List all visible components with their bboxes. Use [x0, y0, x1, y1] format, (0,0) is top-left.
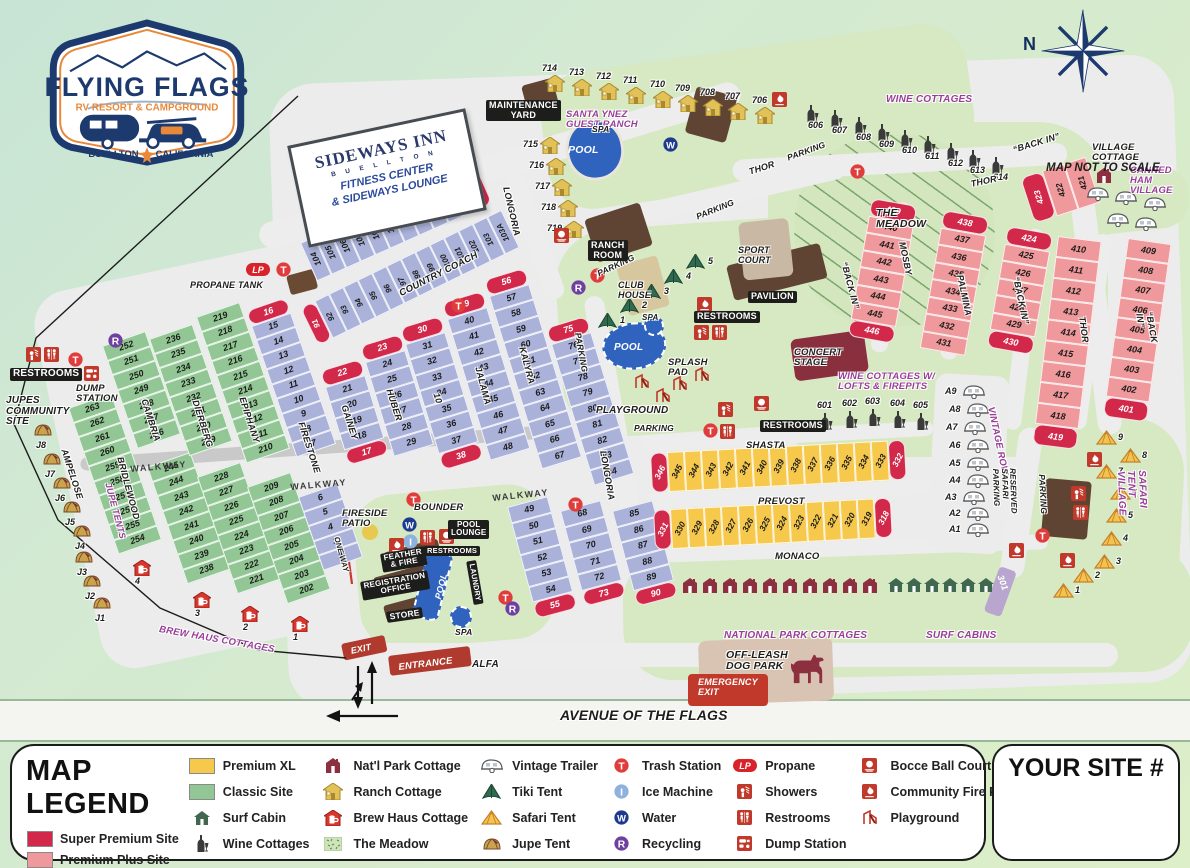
legend-entry-surf-cabin: Surf Cabin: [189, 807, 310, 828]
site-number: 226: [223, 499, 240, 512]
bocce-icon: [754, 396, 769, 411]
legend-entry-dump-station: Dump Station: [731, 833, 846, 854]
site-number: 321: [825, 512, 839, 529]
icon-number: 2: [243, 623, 248, 632]
site-number: 410: [1071, 244, 1087, 255]
site-number: 318: [876, 510, 890, 527]
icon-number: 608: [856, 133, 871, 142]
dump-icon: [84, 366, 99, 381]
icon-number: 610: [902, 146, 917, 155]
shower-icon: [694, 325, 709, 340]
site-number: 249: [133, 383, 150, 396]
wine-icon-603: 603: [868, 408, 881, 427]
legend-entry-label: Brew Haus Cottage: [354, 811, 469, 825]
logo-title-svg: FLYING FLAGS: [45, 72, 250, 102]
site-number: 425: [1018, 250, 1034, 261]
site-number: 73: [598, 588, 610, 599]
ranch-icon: [552, 183, 572, 200]
site-number: 250: [128, 368, 145, 381]
svg-text:W: W: [617, 813, 626, 823]
label-prevost: PREVOST: [758, 497, 805, 507]
icon-number: 717: [535, 182, 550, 191]
r-icon: R: [108, 333, 123, 348]
site-number: 29: [405, 437, 417, 449]
site-number: 56: [500, 276, 512, 288]
site-number: 50: [528, 520, 540, 531]
icon-number: 613: [970, 166, 985, 175]
legend-entry-bocce-ball-court: Bocce Ball Court: [856, 755, 1005, 776]
legend-entry-ranch-cottage: Ranch Cottage: [320, 781, 469, 802]
legend-entry-tiki-tent: Tiki Tent: [478, 781, 598, 802]
site-number: 235: [170, 347, 187, 360]
site-number: 54: [545, 584, 557, 595]
label-concert-stage: CONCERT STAGE: [794, 348, 842, 368]
site-number: 407: [1135, 285, 1151, 296]
site-number: 431: [936, 338, 952, 349]
icon-number: A3: [945, 493, 957, 502]
legend-entry-label: Wine Cottages: [223, 837, 310, 851]
brew-icon-4: 4: [133, 560, 151, 576]
site-number: 33: [431, 371, 443, 383]
fire-icon: [1087, 454, 1102, 471]
ranch-icon-708: 708: [703, 99, 723, 116]
tiki-icon-1: 1: [598, 313, 617, 328]
wc-icon: [44, 347, 59, 362]
site-number: 96: [383, 283, 394, 295]
site-number: 59: [515, 323, 527, 335]
t-icon: T: [568, 499, 583, 516]
legend-entry-wine-cottages: Wine Cottages: [189, 833, 310, 854]
site-number: 260: [99, 445, 116, 458]
site-number: 28: [401, 421, 413, 433]
site-338: 338: [786, 445, 805, 486]
site-number: 432: [939, 320, 955, 331]
icon-number: 609: [879, 140, 894, 149]
natl-icon: [782, 578, 798, 593]
wine-icon-612: 612: [946, 142, 959, 161]
w-icon: W: [663, 139, 678, 156]
surf-icon: [888, 579, 904, 596]
site-number: 239: [193, 548, 210, 561]
label-parking: PARKING: [634, 424, 674, 433]
site-318: 318: [874, 498, 893, 539]
natl-icon: [822, 580, 838, 597]
tiki-icon: [598, 315, 617, 332]
site-number: 416: [1055, 369, 1071, 380]
icon-number: 604: [890, 399, 905, 408]
site-324: 324: [772, 503, 791, 544]
r-icon: R: [614, 836, 629, 851]
site-number: 17: [361, 446, 373, 458]
label-sport-court: SPORT COURT: [738, 246, 771, 265]
label-spa: SPA: [455, 628, 472, 637]
site-335: 335: [837, 442, 856, 483]
site-number: 244: [168, 475, 185, 488]
legend-entry-vintage-trailer: Vintage Trailer: [478, 755, 598, 776]
site-number: 323: [791, 514, 805, 531]
site-326: 326: [738, 505, 757, 546]
site-number: 218: [217, 325, 234, 338]
logo-badge: FLYING FLAGS RV RESORT & CAMPGROUND BUEL…: [28, 18, 266, 166]
t-icon: T: [568, 497, 583, 512]
jupe-icon: [73, 524, 91, 541]
icon-number: 715: [523, 140, 538, 149]
icon-number: 708: [700, 88, 715, 97]
natl-icon: [702, 580, 718, 597]
compass-n: N: [1023, 34, 1036, 55]
natl-icon: [742, 580, 758, 597]
icon-number: 718: [541, 203, 556, 212]
safari-icon: [1096, 432, 1117, 449]
site-number: 324: [774, 515, 788, 532]
label-fireside-patio: FIRESIDE PATIO: [342, 509, 387, 529]
label-restrooms: RESTROOMS: [760, 420, 826, 432]
site-number: 203: [293, 568, 310, 581]
jupe-icon-J1: J1: [93, 597, 111, 609]
site-332: 332: [888, 440, 907, 481]
site-number: 52: [536, 552, 548, 563]
t-icon: T: [614, 758, 629, 773]
site-number: 444: [870, 291, 886, 302]
label-village-cottage: VILLAGE COTTAGE: [1092, 143, 1139, 163]
legend-entry-label: Showers: [765, 785, 817, 799]
surf-icon: [888, 578, 904, 592]
icon-number: 716: [529, 161, 544, 170]
site-number: 209: [263, 480, 280, 493]
site-number: 65: [544, 418, 556, 430]
trailer-icon: [1143, 198, 1167, 215]
site-number: 93: [340, 304, 351, 316]
site-number: 234: [175, 361, 192, 374]
site-number: 423: [1032, 189, 1044, 205]
natl-icon: [862, 580, 878, 597]
site-337: 337: [803, 444, 822, 485]
ranch-icon-713: 713: [572, 79, 592, 96]
legend-entry-label: Propane: [765, 759, 815, 773]
label-avenue-of-the-flags: AVENUE OF THE FLAGS: [560, 708, 728, 723]
site-number: 446: [864, 326, 880, 337]
icon-number: 706: [752, 96, 767, 105]
legend-entry-showers: Showers: [731, 781, 846, 802]
legend-entry-playground: Playground: [856, 807, 1005, 828]
wc-icon: [720, 426, 735, 443]
icon-number: J1: [95, 614, 105, 623]
trailer-icon-A3: A3: [962, 490, 986, 505]
site-329: 329: [687, 507, 706, 548]
site-331: 331: [653, 509, 672, 550]
t-icon: T: [1035, 528, 1050, 543]
icon-number: A2: [949, 509, 961, 518]
surf-icon: [194, 811, 210, 825]
legend-entry-nat-l-park-cottage: Nat'l Park Cottage: [320, 755, 469, 776]
wine-icon-602: 602: [845, 410, 858, 429]
site-number: 85: [628, 508, 640, 519]
fire-icon: [697, 297, 712, 312]
avenue-edge-bottom: [0, 740, 1190, 742]
svg-text:R: R: [112, 336, 120, 347]
surf-icon: [978, 579, 994, 596]
site-number: 82: [596, 434, 608, 446]
site-number: 22: [336, 367, 348, 379]
legend-column-6: LPPropaneShowersRestroomsDump Station: [731, 751, 846, 854]
natl-icon: [802, 578, 818, 593]
site-number: 327: [723, 518, 737, 535]
shower-icon: [26, 349, 41, 366]
site-number: 433: [942, 303, 958, 314]
site-number: 63: [534, 386, 546, 398]
site-340: 340: [752, 447, 771, 488]
lp-icon: LP: [246, 263, 270, 276]
site-number: 25: [386, 374, 398, 386]
safari-icon-1: 1: [1053, 583, 1074, 598]
icon-number: 3: [195, 609, 200, 618]
lp-icon: LP: [733, 759, 757, 772]
compass-rose: N MAP NOT TO SCALE: [1040, 6, 1126, 101]
campground-map: 1041051061071081091101111121131141159192…: [0, 0, 1190, 868]
legend-entry-label: Dump Station: [765, 837, 846, 851]
site-number: 411: [1068, 265, 1083, 276]
site-number: 328: [706, 519, 720, 536]
site-number: 205: [283, 539, 300, 552]
wine-icon-604: 604: [893, 410, 906, 429]
trailer-icon-A2: A2: [966, 506, 990, 521]
t-icon: T: [68, 352, 83, 367]
site-346: 346: [650, 452, 669, 493]
site-number: 254: [129, 533, 146, 546]
surf-icon: [960, 579, 976, 596]
site-number: 412: [1065, 285, 1081, 296]
tiki-icon-5: 5: [686, 254, 705, 269]
site-number: 92: [325, 311, 336, 323]
site-320: 320: [840, 499, 859, 540]
svg-text:R: R: [509, 604, 517, 615]
legend-columns: Premium XLClassic SiteSurf CabinWine Cot…: [189, 751, 1005, 854]
legend-entry-premium-plus-site: Premium Plus Site: [26, 849, 179, 868]
wine-icon-609: 609: [877, 123, 890, 142]
brew-icon-3: 3: [193, 592, 211, 608]
site-number: 335: [839, 454, 853, 471]
fire-icon: [772, 92, 787, 107]
site-number: 222: [243, 558, 260, 571]
legend-entry-label: Playground: [890, 811, 959, 825]
wine-icon: [868, 414, 881, 431]
site-number: 78: [577, 371, 589, 383]
site-number: 330: [673, 520, 687, 537]
site-number: 340: [754, 459, 768, 476]
natl-icon: [842, 580, 858, 597]
site-number: 87: [637, 540, 649, 551]
site-number: 15: [267, 320, 279, 332]
site-number: 242: [178, 504, 195, 517]
trailer-icon: [966, 524, 990, 541]
icon-number: A6: [949, 441, 961, 450]
trailer-icon: [963, 422, 987, 439]
ranch-icon: [626, 91, 646, 108]
site-number: 413: [1063, 306, 1079, 317]
sw-pp-icon: [27, 852, 53, 868]
trailer-icon: [1134, 218, 1158, 235]
svg-text:CALIFORNIA: CALIFORNIA: [156, 149, 214, 159]
shower-icon: [1071, 486, 1086, 501]
site-number: 243: [173, 489, 190, 502]
ranch-icon: [703, 103, 723, 120]
safari-icon: [481, 810, 502, 825]
icon-number: 711: [623, 76, 637, 85]
fire-icon: [1009, 543, 1024, 558]
trailer-icon-A5: A5: [966, 456, 990, 471]
jupe-icon-J3: J3: [75, 551, 93, 563]
shower-icon: [737, 784, 752, 799]
natl-icon: [782, 580, 798, 597]
t-icon: T: [276, 262, 291, 277]
site-number: 344: [686, 462, 700, 479]
svg-text:RV RESORT & CAMPGROUND: RV RESORT & CAMPGROUND: [76, 103, 219, 114]
site-number: 207: [273, 509, 290, 522]
brew-icon-1: 1: [291, 616, 309, 632]
site-number: 228: [213, 470, 230, 483]
site-number: 424: [1021, 233, 1037, 244]
safari-icon-8: 8: [1120, 448, 1141, 463]
t-icon: T: [850, 166, 865, 183]
trailer-icon: [962, 386, 986, 403]
icon-number: A8: [949, 405, 961, 414]
icon-number: 3: [664, 287, 669, 296]
site-number: 4: [327, 522, 335, 532]
label-spa: SPA: [592, 125, 609, 134]
legend-entry-label: Premium Plus Site: [60, 853, 170, 867]
site-330: 330: [670, 508, 689, 549]
ranch-icon-717: 717: [552, 179, 572, 196]
ranch-icon: [653, 95, 673, 112]
label-splash-pad: SPLASH PAD: [668, 358, 708, 378]
site-323: 323: [789, 502, 808, 543]
label-restrooms: RESTROOMS: [694, 311, 760, 323]
trailer-icon-A6: A6: [966, 438, 990, 453]
legend-entry-classic-site: Classic Site: [189, 781, 310, 802]
legend-entry-label: Bocce Ball Court: [890, 759, 991, 773]
icon-number: 606: [808, 121, 823, 130]
legend-entry-recycling: RRecycling: [608, 833, 721, 854]
trailer-icon: [1086, 186, 1110, 201]
icon-number: 607: [832, 126, 847, 135]
site-number: 12: [282, 364, 294, 376]
site-number: 48: [502, 441, 514, 453]
svg-text:T: T: [618, 761, 625, 772]
safari-icon-4: 4: [1101, 531, 1122, 546]
site-336: 336: [820, 443, 839, 484]
natl-icon: [822, 578, 838, 593]
site-number: 36: [445, 419, 457, 431]
site-number: 216: [227, 354, 244, 367]
site-number: 41: [468, 331, 480, 343]
site-328: 328: [704, 506, 723, 547]
trailer-icon-A9: A9: [962, 384, 986, 399]
t-icon: T: [451, 298, 466, 313]
site-number: 64: [539, 402, 551, 414]
site-number: 343: [703, 462, 717, 479]
site-344: 344: [684, 450, 703, 491]
label-safari-tent-village: SAFARI TENT VILLAGE: [1114, 470, 1147, 516]
natl-icon: [722, 580, 738, 597]
ranch-icon-715: 715: [540, 137, 560, 154]
site-number: 31: [421, 340, 433, 352]
icon-number: 5: [708, 257, 713, 266]
your-site-label: YOUR SITE #: [1008, 754, 1164, 782]
t-icon: T: [1035, 530, 1050, 547]
label-surf-cabins: SURF CABINS: [926, 631, 997, 642]
site-number: 224: [233, 529, 250, 542]
site-number: 94: [354, 297, 365, 309]
trailer-icon: [1086, 188, 1110, 205]
site-322: 322: [806, 501, 825, 542]
site-number: 42: [473, 346, 485, 358]
label-national-park-cottages: NATIONAL PARK COTTAGES: [724, 631, 867, 642]
site-number: 79: [582, 387, 594, 399]
natl-icon: [802, 580, 818, 597]
ranch-icon: [545, 79, 565, 96]
site-number: 88: [641, 556, 653, 567]
surf-icon: [924, 579, 940, 596]
legend-column-1: MAP LEGEND Super Premium SitePremium Plu…: [26, 751, 179, 854]
trailer-icon: [1134, 216, 1158, 231]
icon-number: 713: [569, 68, 584, 77]
ranch-icon: [728, 107, 748, 124]
wine-icon-608: 608: [854, 116, 867, 135]
site-number: 13: [277, 350, 289, 362]
site-number: 86: [633, 524, 645, 535]
site-number: 240: [188, 533, 205, 546]
legend-entry-label: Restrooms: [765, 811, 830, 825]
label-wine-cottages: WINE COTTAGES: [886, 95, 972, 106]
ranch-icon: [323, 783, 343, 800]
trailer-icon: [1143, 196, 1167, 211]
ranch-icon-711: 711: [626, 87, 646, 104]
site-number: 445: [867, 308, 883, 319]
icon-number: 2: [1095, 571, 1100, 580]
wc-icon: [712, 327, 727, 344]
natl-icon: [862, 578, 878, 593]
icon-number: A9: [945, 387, 957, 396]
icon-number: 605: [913, 401, 928, 410]
site-number: 227: [218, 485, 235, 498]
site-number: 339: [771, 458, 785, 475]
shower-icon: [26, 347, 41, 362]
jupe-icon: [43, 452, 61, 469]
bocce-icon: [554, 230, 569, 247]
site-number: 430: [1003, 336, 1019, 347]
legend-entry-label: Super Premium Site: [60, 832, 179, 846]
label-jupes-community-site: JUPES COMMUNITY SITE: [6, 396, 69, 428]
svg-text:T: T: [455, 301, 462, 312]
site-number: 319: [859, 511, 873, 528]
jupe-icon: [93, 596, 111, 613]
site-number: 332: [890, 452, 904, 469]
site-number: 221: [248, 573, 265, 586]
label-pool: POOL: [614, 343, 643, 354]
t-icon: T: [276, 264, 291, 281]
site-number: 32: [426, 356, 438, 368]
tiki-icon-4: 4: [664, 269, 683, 284]
icon-number: 603: [865, 397, 880, 406]
svg-text:T: T: [1039, 531, 1046, 542]
svg-text:T: T: [707, 426, 714, 437]
meadow-icon: [324, 837, 342, 851]
legend-entry-label: The Meadow: [354, 837, 429, 851]
svg-text:W: W: [666, 140, 675, 150]
legend-entry-premium-xl: Premium XL: [189, 755, 310, 776]
icon-number: J8: [36, 441, 46, 450]
site-number: 225: [228, 514, 245, 527]
